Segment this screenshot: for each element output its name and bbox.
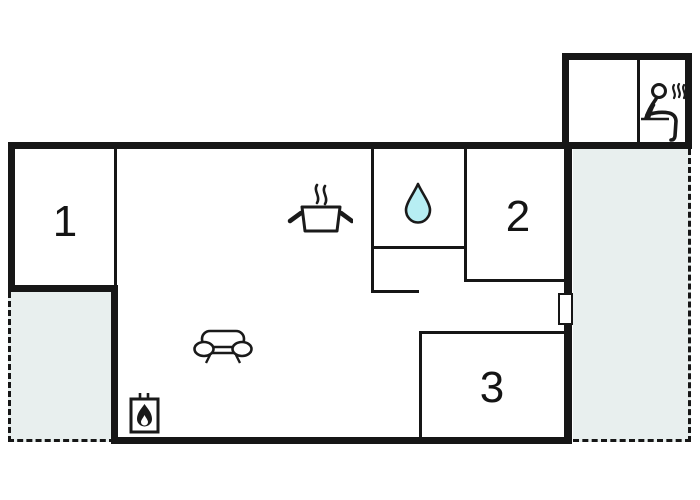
sauna-wall-left <box>562 53 569 149</box>
wall-top <box>8 142 692 149</box>
sauna-icon <box>639 80 689 146</box>
wall-room2-bottom <box>464 279 568 282</box>
sofa-icon <box>193 328 253 366</box>
terrace-bottom-left <box>8 292 115 442</box>
wall-bottom <box>111 437 572 444</box>
floor-plan: 1 2 3 <box>0 0 700 500</box>
terrace-right <box>573 149 691 442</box>
wall-bathroom-left <box>371 149 374 293</box>
door-marker <box>558 293 573 325</box>
wall-bathroom-bottom <box>371 246 467 249</box>
cooking-pot-icon <box>283 182 353 234</box>
wall-left-mid <box>111 285 118 444</box>
wall-room1-right <box>114 149 117 285</box>
wood-stove-icon <box>127 391 161 435</box>
wall-room1-bottom <box>8 285 118 292</box>
wall-hall-stub <box>371 290 419 293</box>
room-2-label: 2 <box>506 192 530 242</box>
wall-room3-top <box>419 331 568 334</box>
wall-left <box>8 142 15 292</box>
room-1-label: 1 <box>53 197 77 247</box>
sauna-wall-top <box>562 53 692 60</box>
water-drop-icon <box>402 181 434 225</box>
wall-room2-left <box>464 149 467 282</box>
room-3-label: 3 <box>480 363 504 413</box>
wall-room3-left <box>419 331 422 437</box>
